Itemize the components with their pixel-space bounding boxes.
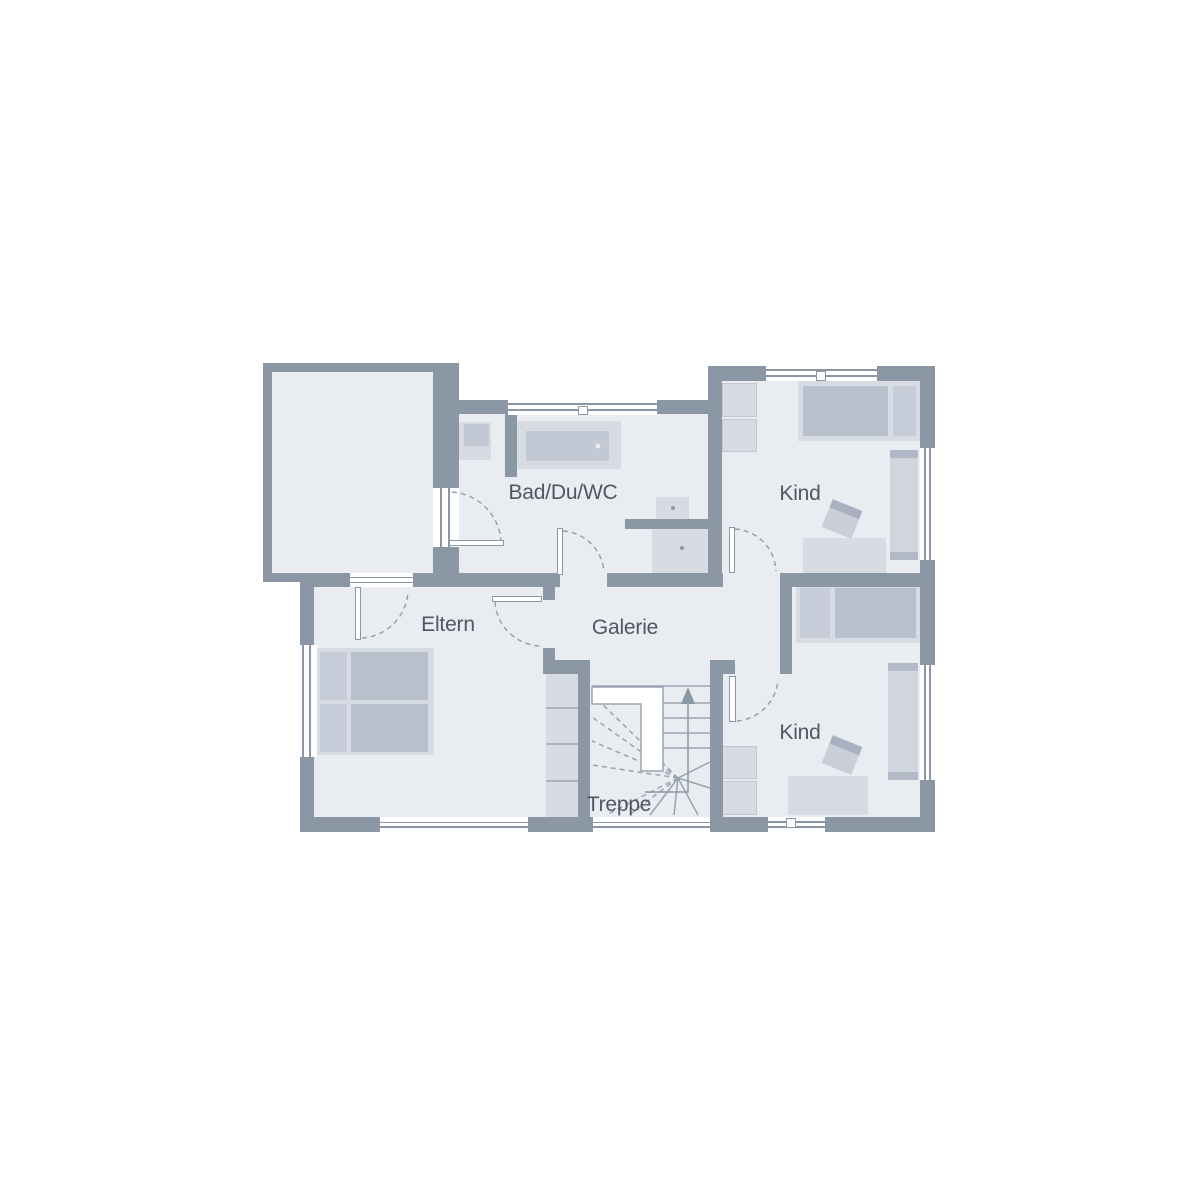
wall-segment bbox=[607, 573, 723, 587]
wall-segment bbox=[300, 817, 380, 832]
closet-divider bbox=[546, 743, 582, 745]
window-stairs-bottom bbox=[593, 818, 710, 831]
wall-segment bbox=[263, 363, 459, 372]
toilet bbox=[652, 529, 708, 577]
window-parents-bottom bbox=[380, 818, 528, 831]
bed-mattress bbox=[351, 652, 428, 700]
wardrobe bbox=[722, 383, 757, 417]
wall-segment bbox=[433, 363, 459, 488]
wardrobe bbox=[722, 746, 757, 779]
wardrobe bbox=[722, 781, 757, 815]
bathtub bbox=[526, 431, 609, 461]
desk-side bbox=[888, 663, 918, 780]
bed-pillow bbox=[320, 704, 347, 752]
wall-segment bbox=[920, 560, 935, 665]
window-child2-right bbox=[920, 665, 935, 780]
closet-divider bbox=[546, 707, 582, 709]
door-leaf-bath bbox=[557, 528, 563, 575]
wall-segment bbox=[263, 363, 272, 582]
wall-segment bbox=[543, 573, 555, 600]
wall-segment bbox=[710, 660, 723, 817]
window-mullion bbox=[816, 371, 826, 381]
wall-segment bbox=[708, 381, 722, 573]
door-leaf-terrace-bath bbox=[449, 540, 504, 546]
terrace-area bbox=[272, 372, 433, 573]
wall-segment bbox=[781, 573, 920, 587]
room-label-child2: Kind bbox=[779, 721, 820, 745]
window-mullion bbox=[786, 818, 796, 828]
wall-segment bbox=[263, 573, 300, 582]
floor-plan: Bad/Du/WC Kind Eltern Galerie Kind Trepp… bbox=[0, 0, 1200, 1200]
wall-segment bbox=[825, 817, 935, 832]
desk bbox=[788, 776, 868, 815]
wall-segment bbox=[708, 366, 766, 381]
desk-cap bbox=[888, 663, 918, 671]
wall-segment bbox=[300, 573, 350, 587]
wall-segment bbox=[433, 400, 508, 414]
wall-segment bbox=[505, 414, 517, 477]
wall-segment bbox=[528, 817, 593, 832]
door-leaf-terrace-parents bbox=[355, 587, 361, 640]
room-label-stairs: Treppe bbox=[587, 793, 652, 817]
shower-tray bbox=[464, 424, 489, 446]
room-label-bath: Bad/Du/WC bbox=[508, 481, 617, 505]
bed-mattress bbox=[835, 588, 916, 638]
bed-mattress bbox=[803, 386, 888, 436]
bed-pillow bbox=[893, 386, 916, 436]
wall-segment bbox=[710, 817, 768, 832]
room-label-gallery: Galerie bbox=[592, 616, 658, 640]
room-label-child1: Kind bbox=[779, 482, 820, 506]
wardrobe bbox=[722, 419, 757, 452]
wall-segment bbox=[780, 573, 792, 674]
shelf-cap bbox=[890, 552, 918, 560]
window-child1-right bbox=[920, 448, 935, 560]
closet-divider bbox=[546, 780, 582, 782]
glazed-door-terrace-bath bbox=[433, 488, 459, 547]
wc-partition bbox=[625, 519, 722, 529]
window-child2-bottom bbox=[768, 817, 825, 831]
shelf bbox=[890, 450, 918, 560]
window-parents-left bbox=[297, 645, 317, 757]
desk bbox=[803, 538, 886, 573]
shelf-cap bbox=[890, 450, 918, 458]
glazed-door-terrace-parents bbox=[350, 573, 413, 587]
door-leaf-child2 bbox=[729, 676, 736, 722]
bed-pillow bbox=[320, 652, 347, 700]
sink bbox=[656, 497, 689, 519]
room-label-parents: Eltern bbox=[421, 613, 475, 637]
window-mullion bbox=[578, 406, 588, 415]
door-leaf-parents bbox=[492, 596, 542, 602]
bed-mattress bbox=[351, 704, 428, 752]
wall-segment bbox=[920, 366, 935, 448]
wall-segment bbox=[543, 660, 590, 674]
desk-cap bbox=[888, 772, 918, 780]
bed-pillow bbox=[800, 588, 830, 638]
wall-segment bbox=[413, 573, 560, 587]
door-leaf-child1 bbox=[729, 527, 735, 573]
